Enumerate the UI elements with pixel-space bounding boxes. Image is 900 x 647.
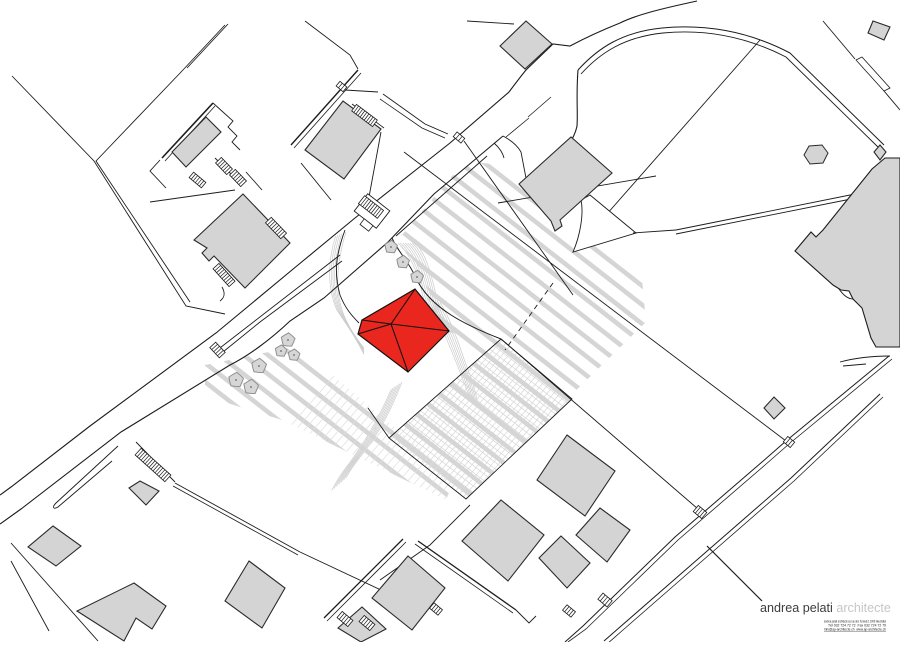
svg-text:andrea pelati architecte: andrea pelati architecte: [760, 601, 891, 615]
svg-text:info@ap-architecte.ch www.ap-: info@ap-architecte.ch www.ap-architecte.…: [824, 628, 886, 632]
